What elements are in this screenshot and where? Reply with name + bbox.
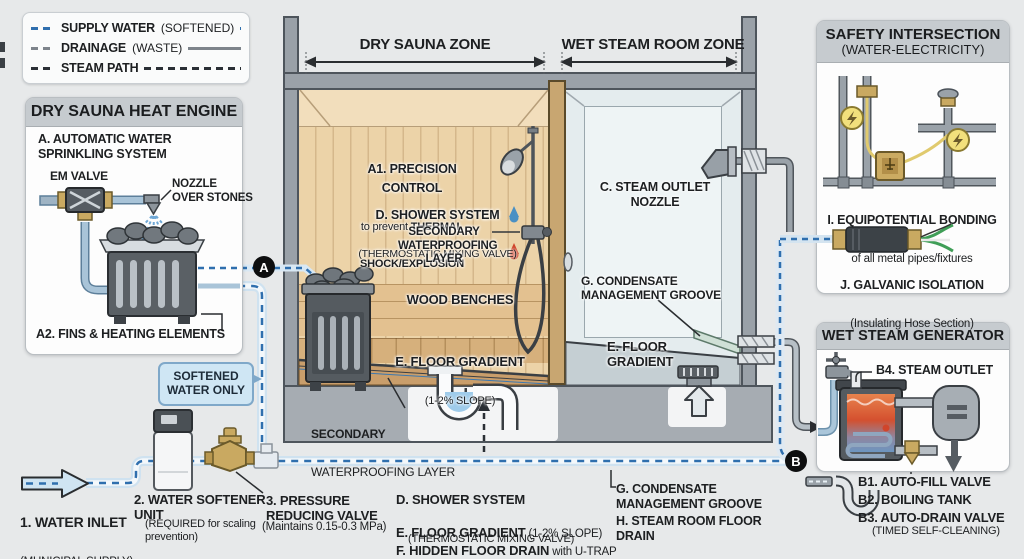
label-a2-fins: A2. FINS & HEATING ELEMENTS (36, 327, 225, 342)
label-wood-benches: WOOD BENCHES (380, 292, 540, 307)
svg-text:B: B (791, 454, 800, 469)
f-bot-sub: with U-TRAP (549, 546, 616, 558)
inlet-sub: (MUNICIPAL SUPPLY) (20, 556, 133, 559)
zone-label-dry: DRY SAUNA ZONE (320, 36, 530, 54)
label-bottom-hidden-drain: F. HIDDEN FLOOR DRAIN with U-TRAP (396, 523, 617, 559)
label-condensate-groove: G. CONDENSATE MANAGEMENT GROOVE (581, 274, 721, 302)
floor-title: E. FLOOR GRADIENT (395, 354, 525, 369)
legend-row-supply: SUPPLY WATER (SOFTENED) (31, 21, 241, 35)
floor-sub: (1-2% SLOPE) (425, 395, 495, 407)
generator-panel: WET STEAM GENERATOR (816, 322, 1010, 472)
label-water-inlet: 1. WATER INLET (MUNICIPAL SUPPLY) (20, 495, 133, 559)
label-prv-sub: (Maintains 0.15-0.3 MPa) (262, 521, 386, 535)
steam-riser-line (780, 240, 790, 459)
marker-b: B (785, 450, 807, 472)
label-secondary-waterproofing: SECONDARY WATERPROOFING LAYER (398, 226, 490, 267)
label-b3-sub: (TIMED SELF-CLEANING) (872, 525, 1000, 538)
sauna-ceiling (299, 90, 548, 127)
supply-line-swatch (31, 27, 55, 30)
legend-label: SUPPLY WATER (61, 21, 155, 35)
marker-a: A (253, 256, 275, 278)
label-floor-gradient: E. FLOOR GRADIENT (1-2% SLOPE) (380, 334, 540, 410)
label-prv-title: 3. PRESSURE REDUCING VALVE (266, 493, 378, 524)
legend-suffix: (SOFTENED) (161, 21, 234, 35)
sauna-plumbing-diagram: SUPPLY WATER (SOFTENED) DRAINAGE (WASTE)… (0, 0, 1024, 559)
label-bottom-steam-drain: H. STEAM ROOM FLOOR DRAIN (616, 514, 762, 544)
j-title: J. GALVANIC ISOLATION (840, 278, 984, 292)
sub-wp-1: SECONDARY (311, 427, 385, 441)
i-title: I. EQUIPOTENTIAL BONDING (827, 213, 996, 227)
zone-label-wet: WET STEAM ROOM ZONE (556, 36, 750, 54)
heat-engine-title: DRY SAUNA HEAT ENGINE (26, 98, 242, 127)
drainage-line-swatch (188, 47, 241, 50)
slab-cutout-drain (668, 387, 726, 427)
steam-line-swatch (144, 67, 241, 70)
label-b2-boiling-tank: B2. BOILING TANK (858, 492, 972, 507)
f-bot-title: F. HIDDEN FLOOR DRAIN (396, 543, 549, 558)
drainage-line-swatch (31, 47, 55, 50)
svg-text:A: A (259, 260, 269, 275)
legend-label: STEAM PATH (61, 61, 138, 75)
label-steam-floor-gradient: E. FLOOR GRADIENT (607, 339, 673, 370)
label-steam-nozzle: C. STEAM OUTLET NOZZLE (585, 180, 725, 210)
water-softener-unit (154, 410, 192, 490)
label-b4-steam-outlet: B4. STEAM OUTLET (876, 363, 993, 378)
legend: SUPPLY WATER (SOFTENED) DRAINAGE (WASTE)… (22, 12, 250, 84)
pressure-reducing-valve (205, 428, 263, 493)
tee-fitting (254, 444, 278, 468)
shower-title: D. SHOWER SYSTEM (376, 208, 500, 222)
label-sub-waterproofing: SECONDARY WATERPROOFING LAYER (311, 406, 455, 482)
safety-subtitle: (WATER-ELECTRICITY) (817, 43, 1009, 58)
safety-header: SAFETY INTERSECTION (WATER-ELECTRICITY) (817, 21, 1009, 63)
legend-row-drainage: DRAINAGE (WASTE) (31, 41, 241, 55)
supply-line-swatch (240, 27, 241, 30)
inlet-title: 1. WATER INLET (20, 514, 127, 530)
edge-mark (0, 58, 5, 68)
steam-line-swatch (31, 67, 55, 70)
water-inlet-arrow (22, 470, 88, 497)
label-b3-autodrain: B3. AUTO-DRAIN VALVE (858, 510, 1004, 525)
room-divider-wall (548, 80, 566, 385)
softened-water-callout: SOFTENED WATER ONLY (158, 362, 254, 406)
label-nozzle: NOZZLE OVER STONES (172, 178, 253, 205)
legend-row-steam: STEAM PATH (31, 61, 241, 75)
label-galvanic: J. GALVANIC ISOLATION (Insulating Hose S… (818, 257, 1006, 333)
zone-arrows (304, 52, 738, 74)
edge-mark (0, 42, 5, 52)
top-beam (283, 72, 757, 90)
label-softener-sub: (REQUIRED for scaling prevention) (145, 518, 256, 544)
j-sub: (Insulating Hose Section) (850, 318, 973, 330)
steam-room-back-wall (584, 106, 722, 338)
legend-label: DRAINAGE (61, 41, 126, 55)
label-a-sprinkling: A. AUTOMATIC WATER SPRINKLING SYSTEM (38, 132, 171, 162)
safety-title: SAFETY INTERSECTION (817, 26, 1009, 43)
label-b1-autofill: B1. AUTO-FILL VALVE (858, 474, 991, 489)
label-bottom-condensate: G. CONDENSATE MANAGEMENT GROOVE (616, 482, 762, 512)
label-em-valve: EM VALVE (50, 169, 108, 183)
legend-suffix: (WASTE) (132, 41, 182, 55)
